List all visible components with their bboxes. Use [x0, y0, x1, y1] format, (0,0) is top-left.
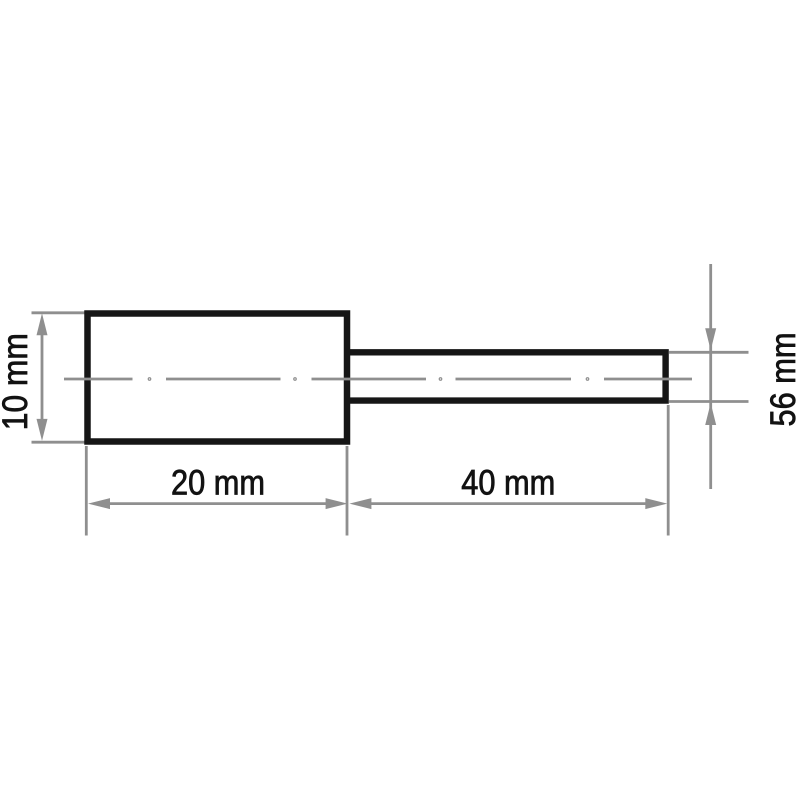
- svg-text:20 mm: 20 mm: [171, 464, 265, 503]
- svg-text:40 mm: 40 mm: [461, 463, 555, 502]
- svg-text:10 mm: 10 mm: [0, 333, 35, 430]
- svg-text:56 mm: 56 mm: [764, 333, 800, 427]
